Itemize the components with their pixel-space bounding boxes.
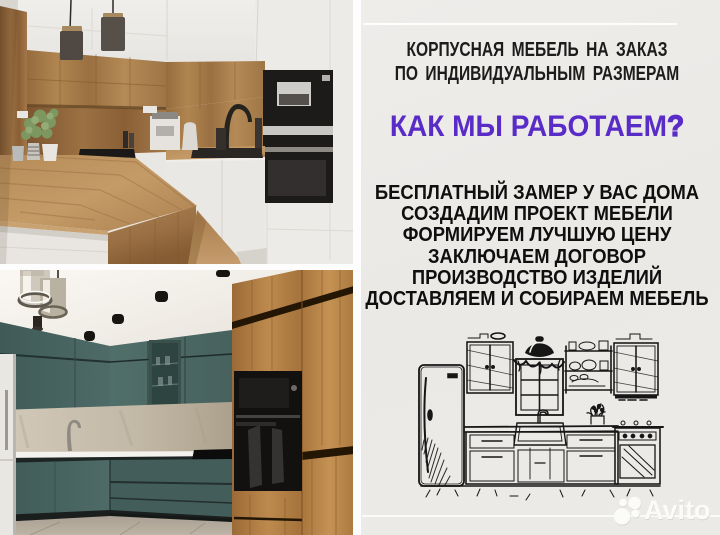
svg-text:Avito: Avito [644, 495, 711, 525]
